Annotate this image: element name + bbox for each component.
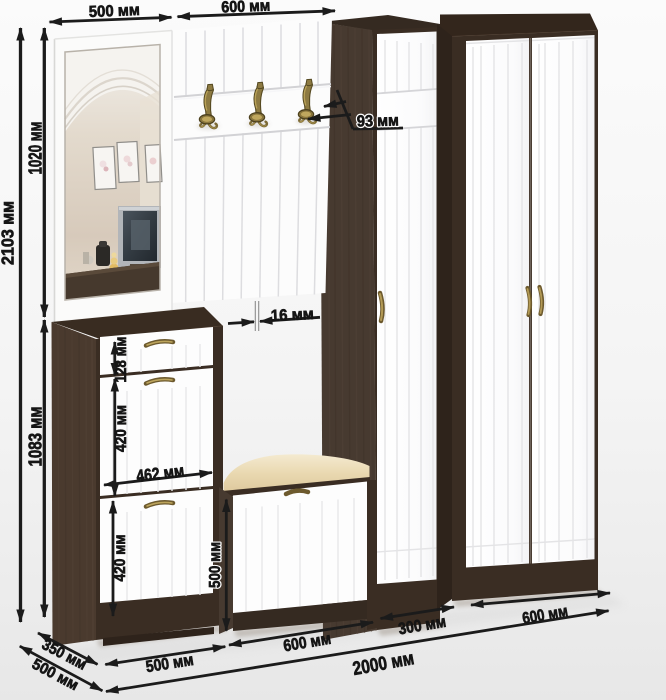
- svg-text:500 мм: 500 мм: [207, 542, 224, 588]
- svg-text:16 мм: 16 мм: [270, 306, 314, 325]
- svg-text:420 мм: 420 мм: [113, 405, 130, 452]
- svg-text:93 мм: 93 мм: [357, 112, 399, 130]
- svg-text:500 мм: 500 мм: [88, 2, 140, 21]
- svg-text:420 мм: 420 мм: [112, 535, 129, 582]
- svg-text:1020 мм: 1020 мм: [26, 122, 46, 175]
- svg-text:600 мм: 600 мм: [221, 0, 271, 16]
- svg-text:128 мм: 128 мм: [113, 337, 130, 383]
- svg-text:2103 мм: 2103 мм: [0, 201, 18, 265]
- svg-text:1083 мм: 1083 мм: [26, 407, 46, 467]
